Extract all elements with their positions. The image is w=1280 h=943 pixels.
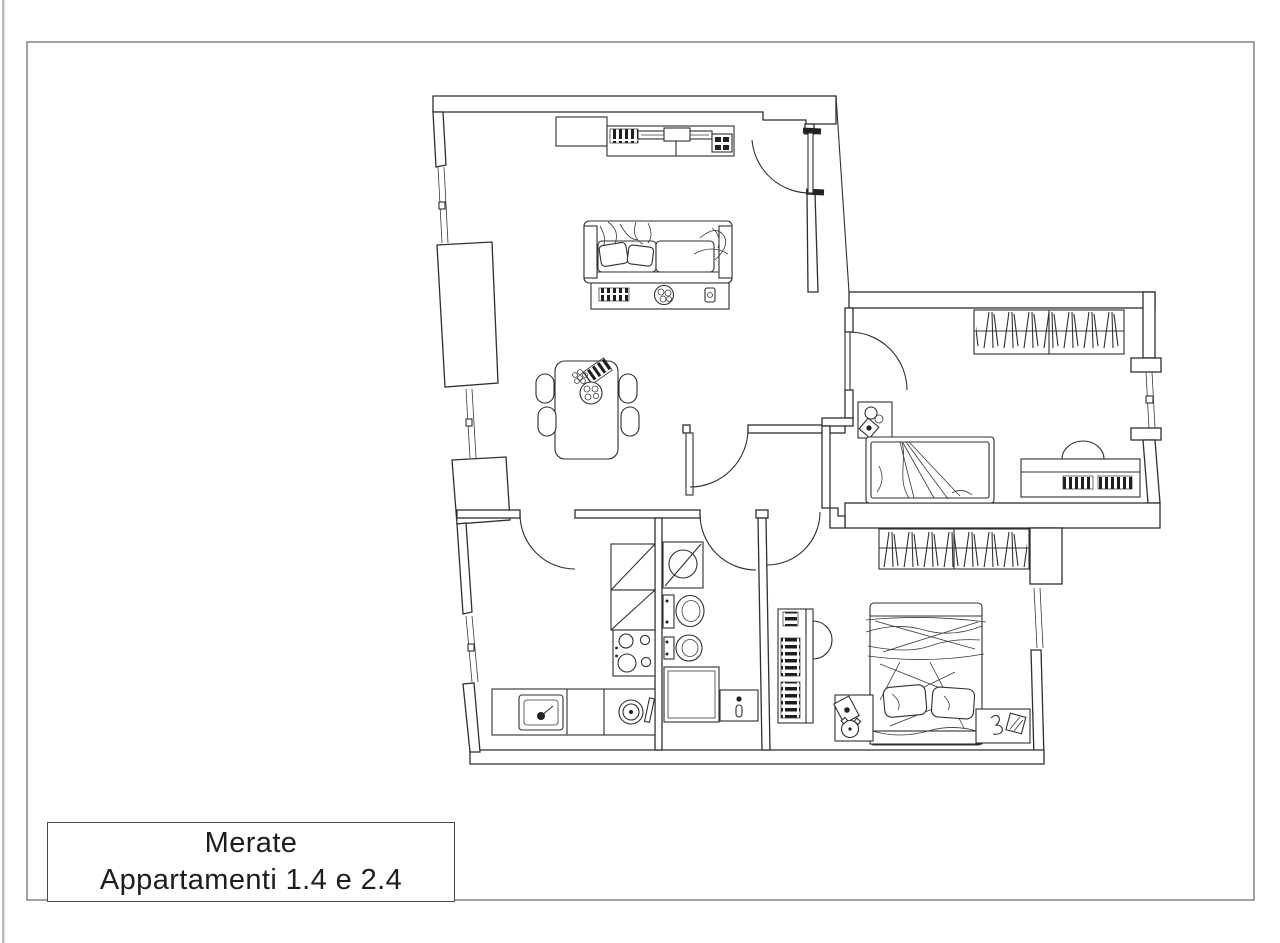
desk-chair bbox=[1062, 441, 1104, 459]
dining-table-symbol bbox=[536, 358, 639, 459]
washbasin-symbol bbox=[663, 542, 703, 588]
shower-symbol bbox=[664, 667, 719, 722]
books bbox=[610, 129, 638, 143]
books bbox=[1063, 476, 1093, 489]
pillow bbox=[883, 684, 927, 718]
tv-console-symbol bbox=[607, 126, 734, 156]
double-bed-symbol bbox=[866, 603, 986, 745]
toilet-symbol bbox=[663, 595, 704, 628]
interior-door-swing bbox=[767, 512, 820, 565]
coffee-table-symbol bbox=[591, 283, 729, 309]
entrance-door-swing bbox=[752, 128, 824, 196]
bedside-table-symbol bbox=[858, 402, 892, 438]
interior-door-swing bbox=[686, 429, 748, 495]
kitchen-counter-symbol bbox=[492, 689, 655, 735]
dining-chair bbox=[536, 374, 554, 403]
wardrobe-symbol bbox=[879, 529, 1029, 569]
bidet-symbol bbox=[664, 635, 702, 661]
dining-chair bbox=[621, 407, 639, 436]
books bbox=[599, 288, 629, 301]
sofa-symbol bbox=[584, 221, 732, 283]
window bbox=[466, 616, 478, 682]
window bbox=[438, 167, 448, 243]
window bbox=[1034, 588, 1043, 648]
desk-chair bbox=[813, 621, 832, 659]
wardrobe-symbol bbox=[974, 310, 1124, 354]
window bbox=[1146, 372, 1155, 428]
washing-machine bbox=[619, 698, 654, 724]
scan-edge-artifact bbox=[2, 0, 5, 943]
fruit-bowl bbox=[580, 382, 602, 404]
cooktop-symbol bbox=[613, 630, 655, 676]
floor-plan-drawing bbox=[0, 0, 1280, 943]
kitchen-sink bbox=[519, 695, 563, 730]
water-heater-symbol bbox=[720, 690, 758, 721]
title-block: Merate Appartamenti 1.4 e 2.4 bbox=[47, 822, 455, 902]
wall-pier bbox=[437, 242, 498, 387]
single-bed-symbol bbox=[866, 437, 994, 503]
bedside-table-symbol bbox=[976, 709, 1030, 743]
scanned-floorplan-page: Merate Appartamenti 1.4 e 2.4 bbox=[0, 0, 1280, 943]
stereo-symbol bbox=[712, 134, 732, 152]
dining-chair bbox=[538, 407, 556, 436]
interior-door-swing bbox=[845, 332, 907, 390]
bookshelf-symbol bbox=[778, 609, 832, 723]
media-cabinet-symbol bbox=[556, 117, 607, 146]
pillow bbox=[931, 687, 975, 720]
window bbox=[466, 389, 476, 458]
bedside-table-symbol bbox=[834, 695, 873, 741]
project-title: Merate bbox=[48, 825, 454, 862]
small-speaker bbox=[705, 288, 715, 302]
kitchen-tall-unit-symbol bbox=[611, 544, 655, 630]
books bbox=[1098, 476, 1132, 489]
interior-door-swing bbox=[700, 514, 756, 570]
dining-chair bbox=[619, 374, 637, 403]
desk-symbol bbox=[1021, 441, 1140, 497]
apartment-subtitle: Appartamenti 1.4 e 2.4 bbox=[48, 862, 454, 899]
interior-door-swing bbox=[520, 514, 575, 569]
fruit-bowl bbox=[655, 286, 674, 305]
